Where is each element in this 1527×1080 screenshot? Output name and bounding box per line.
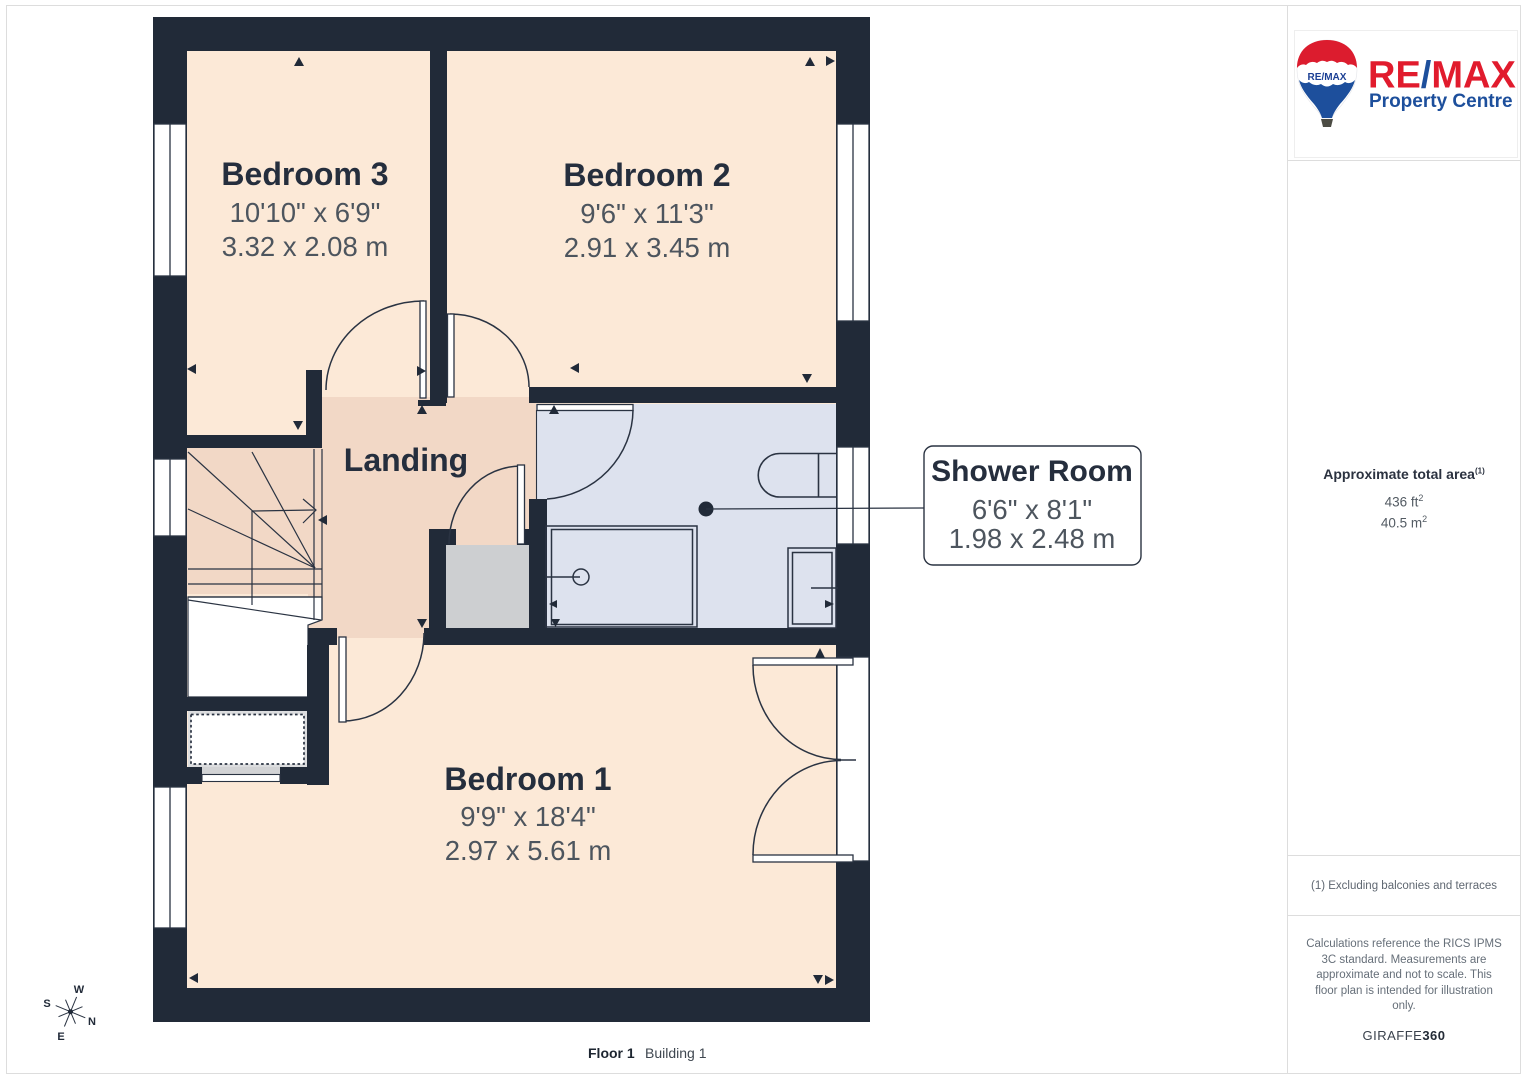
svg-text:2.91 x 3.45 m: 2.91 x 3.45 m [564, 232, 731, 263]
svg-text:10'10" x 6'9": 10'10" x 6'9" [230, 197, 381, 228]
svg-text:9'9" x 18'4": 9'9" x 18'4" [460, 801, 596, 832]
svg-text:6'6" x 8'1": 6'6" x 8'1" [972, 494, 1092, 525]
svg-text:Bedroom 1: Bedroom 1 [444, 761, 611, 797]
svg-text:Floor 1: Floor 1 [588, 1045, 635, 1061]
svg-text:W: W [74, 984, 85, 996]
svg-text:Bedroom 3: Bedroom 3 [221, 156, 388, 192]
svg-text:9'6" x 11'3": 9'6" x 11'3" [580, 198, 714, 229]
svg-text:S: S [43, 998, 50, 1010]
svg-text:Bedroom 2: Bedroom 2 [563, 157, 730, 193]
svg-text:3.32 x 2.08 m: 3.32 x 2.08 m [222, 231, 389, 262]
svg-text:Shower Room: Shower Room [931, 455, 1133, 488]
svg-text:Building 1: Building 1 [645, 1045, 707, 1061]
svg-text:2.97 x 5.61 m: 2.97 x 5.61 m [445, 835, 612, 866]
svg-text:E: E [57, 1031, 64, 1043]
svg-text:N: N [88, 1016, 96, 1028]
svg-text:Property Centre: Property Centre [1369, 91, 1513, 112]
svg-text:1.98 x 2.48 m: 1.98 x 2.48 m [949, 523, 1116, 554]
svg-text:Landing: Landing [344, 442, 468, 478]
svg-text:RE/MAX: RE/MAX [1308, 72, 1347, 83]
